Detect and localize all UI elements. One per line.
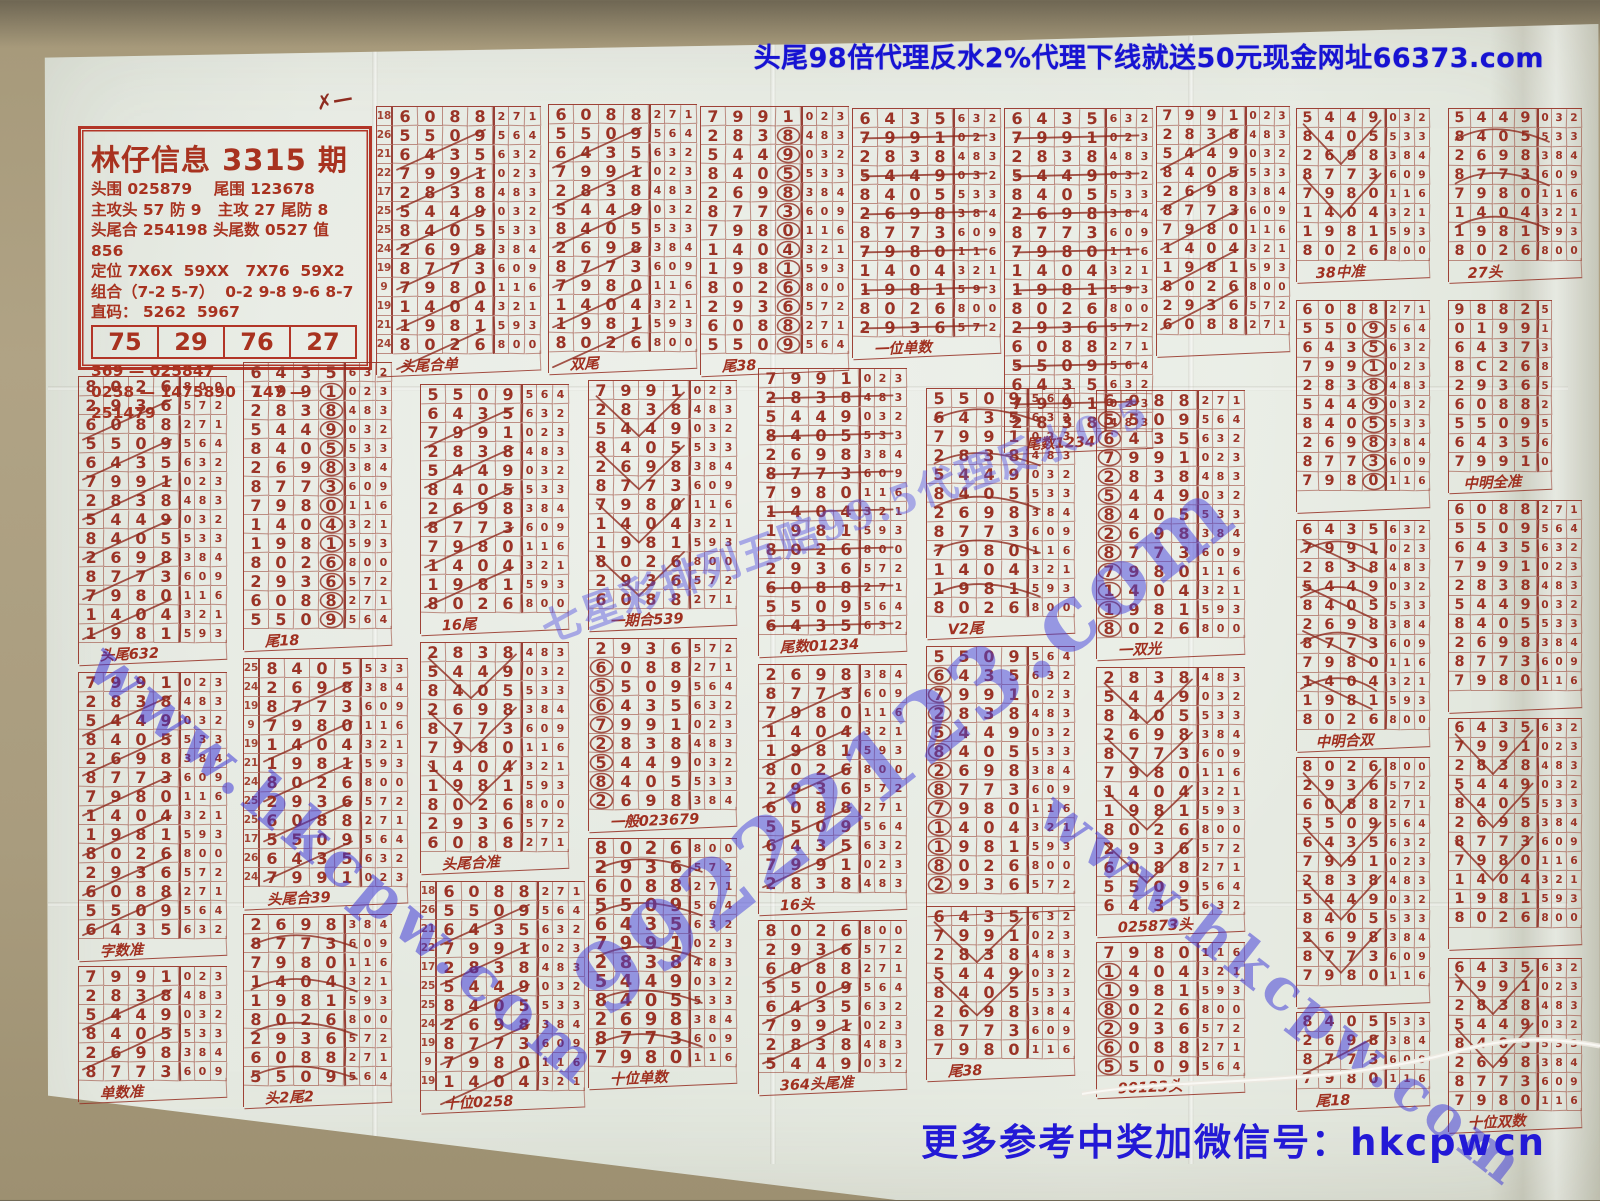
grid-cell: 0	[129, 529, 154, 548]
grid-cell: 5	[701, 335, 726, 355]
grid-cell: 0	[294, 972, 319, 992]
grid-cell: 4	[1197, 668, 1213, 687]
grid-cell: 0	[521, 662, 537, 681]
grid-cell: 9	[664, 677, 689, 697]
grid-cell: 2	[1137, 109, 1153, 128]
grid-cell: 3	[360, 363, 376, 382]
grid-cell: 3	[1059, 427, 1075, 446]
grid-cell: 1	[664, 533, 689, 553]
grid-row: 2698384	[927, 503, 1075, 522]
grid-row: 8773609	[421, 518, 569, 537]
grid-row: 1404321	[1449, 204, 1582, 223]
grid-cell: 0	[1400, 453, 1415, 472]
grid-cell: 2	[891, 559, 907, 578]
grid-cell: 3	[521, 556, 537, 575]
grid-cell: 2	[1297, 616, 1319, 636]
grid-cell: 1	[1363, 223, 1385, 243]
grid-cell: 8	[664, 658, 689, 677]
grid-cell: 3	[1415, 1013, 1430, 1032]
grid-cell: 9	[1363, 815, 1385, 835]
grid-cell: 7	[614, 1029, 639, 1049]
grid-row: 2936572	[589, 571, 737, 590]
grid-row: 8773609	[244, 477, 392, 496]
grid-row: 5449032	[1005, 166, 1153, 185]
grid-cell: 1	[1097, 962, 1122, 981]
grid-cell: 6	[878, 204, 903, 224]
grid-row: 6088271	[244, 591, 392, 610]
grid-cell: 3	[1493, 539, 1515, 558]
grid-cell: 9	[335, 830, 360, 850]
grid-cell: 4	[834, 722, 859, 742]
grid-cell: 3	[392, 754, 408, 773]
grid-cell: 1	[1223, 107, 1245, 127]
grid-row: 8405533	[244, 439, 392, 458]
grid-cell: 7	[1005, 128, 1030, 147]
grid-cell: 5	[154, 730, 179, 750]
grid-row: 2698384	[421, 499, 569, 518]
grid-cell: 0	[891, 760, 907, 779]
grid-row: 5449032	[421, 461, 569, 480]
grid-row: 2838483	[79, 986, 227, 1005]
grid-cell: 3	[1197, 782, 1213, 801]
grid-cell: 2	[360, 382, 376, 401]
grid-cell: 4	[1341, 578, 1363, 598]
grid-cell: 0	[129, 605, 154, 625]
grid-cell: 5	[689, 438, 705, 457]
grid-cell: 4	[1471, 204, 1493, 224]
grid-cell: 2	[179, 882, 195, 901]
grid-cell: 8	[1121, 147, 1137, 166]
grid-cell: 6	[1537, 1073, 1552, 1092]
grid-cell: 0	[977, 983, 1002, 1003]
grid-cell: 0	[521, 423, 537, 442]
grid-cell: 2	[721, 858, 737, 877]
grid-cell: 6	[1471, 814, 1493, 834]
grid-cell: 9	[776, 335, 801, 355]
grid-cell: 0	[1319, 711, 1341, 731]
grid-cell: 0	[614, 877, 639, 897]
grid-cell: 8	[1400, 434, 1415, 453]
grid-cell: 3	[211, 986, 227, 1005]
grid-cell: 8	[969, 204, 985, 223]
grid-cell: 2	[1567, 959, 1582, 978]
grid-cell: 1	[421, 556, 446, 576]
grid-cell: 0	[903, 185, 928, 205]
grid-cell: 3	[977, 446, 1002, 466]
grid-cell: 3	[801, 183, 817, 202]
grid-cell: 9	[269, 496, 294, 516]
grid-cell: 3	[1027, 818, 1043, 837]
grid-cell: 3	[1147, 668, 1172, 688]
grid-cell: 9	[496, 662, 521, 681]
grid-cell: 8	[751, 316, 776, 335]
grid-cell: 7	[285, 697, 310, 717]
grid-cell: 4	[1471, 871, 1493, 891]
grid-cell: 5	[589, 419, 614, 439]
header-card: 林仔信息 3315 期 头围 025879 尾围 123678 主攻头 57 防…	[78, 126, 372, 370]
grid-cell: 5	[1027, 484, 1043, 503]
grid-cell: 7	[809, 464, 834, 483]
grid-row: 6435632	[549, 143, 697, 162]
grid-cell: 3	[360, 735, 376, 754]
grid-cell: 6	[344, 363, 360, 382]
grid-cell: 8	[1223, 183, 1245, 202]
grid-handwritten-label: 头尾合准	[421, 849, 570, 875]
grid-cell: 8	[195, 548, 211, 567]
grid-cell: 9	[784, 779, 809, 798]
grid-cell: 3	[1415, 377, 1430, 396]
grid-cell: 0	[1341, 1013, 1363, 1033]
grid-cell: 2	[537, 556, 553, 575]
grid-cell: 8	[154, 986, 179, 1005]
grid-cell: 6	[1471, 634, 1493, 654]
grid-index-cell: 21	[421, 920, 437, 939]
grid-cell: 5	[421, 461, 446, 480]
grid-cell: 4	[776, 240, 801, 259]
grid-cell: 9	[721, 1029, 737, 1048]
grid-cell: 8	[179, 844, 195, 863]
grid-cell: 9	[664, 972, 689, 991]
grid-cell: 3	[195, 453, 211, 472]
grid-cell: 9	[1260, 259, 1275, 278]
grid-row: 198773609	[421, 1034, 585, 1053]
grid-cell: 8	[649, 333, 665, 352]
grid-cell: 3	[1172, 543, 1197, 563]
grid-cell: 2	[1229, 1019, 1245, 1038]
grid-cell: 0	[1122, 858, 1147, 878]
grid-cell: 0	[195, 844, 211, 863]
grid-cell: 9	[1493, 1054, 1515, 1073]
grid-row: 2698384	[1005, 204, 1153, 223]
grid-cell: 2	[1567, 776, 1582, 795]
grid-cell: 0	[1552, 166, 1567, 185]
grid-cell: 3	[1229, 801, 1245, 820]
grid-cell: 3	[1059, 484, 1075, 503]
grid-cell: 8	[1245, 278, 1260, 297]
grid-cell: 9	[1030, 280, 1055, 299]
grid-row: 1981593	[244, 991, 392, 1010]
grid-row: 7991023	[589, 934, 737, 953]
grid-row: 8405533	[79, 1024, 227, 1043]
grid-cell: 2	[1097, 1019, 1122, 1038]
grid-cell: 1	[853, 280, 878, 300]
grid-cell: 0	[1122, 619, 1147, 638]
grid-cell: 6	[569, 1053, 585, 1072]
grid-cell: 5	[1105, 318, 1121, 337]
grid-cell: 0	[1471, 396, 1493, 416]
grid-row: 6088271	[759, 959, 907, 978]
grid-handwritten-label: 尾38	[927, 1056, 1076, 1082]
grid-cell: 5	[574, 124, 599, 144]
quick-number: 76	[225, 327, 291, 357]
grid-cell: 5	[1319, 320, 1341, 340]
grid-cell: 3	[195, 711, 211, 730]
grid-cell: 9	[1122, 763, 1147, 783]
grid-cell: 2	[1229, 839, 1245, 858]
grid-cell: 7	[446, 719, 471, 739]
grid-cell: 0	[553, 795, 569, 814]
grid-cell: 8	[784, 874, 809, 894]
grid-cell: 6	[1197, 744, 1213, 763]
grid-cell: 4	[1567, 520, 1582, 539]
grid-cell: 6	[614, 1010, 639, 1029]
grid-cell: 3	[471, 643, 496, 663]
grid-cell: 2	[985, 166, 1001, 185]
grid-cell: 6	[1121, 356, 1137, 375]
grid-cell: 3	[721, 400, 737, 419]
grid-cell: 4	[1415, 147, 1430, 166]
grid-cell: 6	[496, 594, 521, 614]
grid-row: 5449032	[79, 1005, 227, 1024]
grid-cell: 8	[1172, 725, 1197, 745]
grid-cell: 8	[927, 522, 952, 541]
grid-cell: 5	[1002, 907, 1027, 927]
grid-cell: 0	[784, 959, 809, 979]
grid-row: 8773609	[244, 934, 392, 953]
grid-cell: 4	[721, 896, 737, 915]
grid-cell: 4	[1319, 521, 1341, 540]
grid-row: 2838483	[759, 1035, 907, 1054]
grid-cell: 8	[1223, 316, 1245, 336]
grid-cell: 6	[549, 105, 574, 125]
grid-cell: 1	[721, 658, 737, 677]
grid-cell: 7	[1260, 297, 1275, 316]
grid-cell: 8	[1201, 316, 1223, 335]
grid-cell: 3	[1385, 1032, 1400, 1051]
grid-cell: 7	[1449, 1092, 1471, 1111]
grid-cell: 9	[1213, 801, 1229, 820]
grid-cell: 2	[211, 510, 227, 529]
grid-cell: 0	[1147, 410, 1172, 430]
grid-cell: 6	[574, 238, 599, 258]
grid-cell: 8	[1363, 559, 1385, 579]
grid-cell: 2	[1157, 126, 1179, 145]
grid-cell: 3	[493, 297, 509, 316]
grid-row: 2698384	[759, 445, 907, 464]
grid-cell: 1	[875, 703, 891, 722]
grid-cell: 2	[701, 183, 726, 202]
grid-cell: 0	[1493, 1035, 1515, 1055]
grid-cell: 3	[496, 518, 521, 537]
grid-cell: 8	[294, 1048, 319, 1068]
grid-cell: 8	[468, 240, 493, 259]
grid-cell: 8	[1515, 997, 1537, 1017]
grid-cell: 3	[1341, 834, 1363, 854]
grid-cell: 9	[1030, 128, 1055, 148]
grid-cell: 4	[1179, 240, 1201, 260]
grid-cell: 7	[701, 221, 726, 241]
grid-cell: 1	[759, 502, 784, 521]
grid-cell: 5	[1449, 596, 1471, 616]
grid-cell: 1	[1097, 782, 1122, 802]
grid-cell: 2	[1097, 839, 1122, 859]
grid-cell: 6	[1319, 1032, 1341, 1052]
grid-cell: 8	[834, 1035, 859, 1055]
grid-cell: 3	[294, 401, 319, 420]
grid-cell: 8	[665, 181, 681, 200]
grid-cell: 0	[1197, 687, 1213, 706]
grid-row: 8773609	[853, 223, 1001, 242]
grid-cell: 9	[614, 495, 639, 514]
grid-cell: 5	[614, 896, 639, 915]
grid-cell: 3	[1043, 408, 1059, 427]
grid-cell: 9	[875, 521, 891, 540]
grid-cell: 8	[589, 476, 614, 496]
grid-cell: 1	[211, 806, 227, 825]
grid-cell: 3	[1567, 978, 1582, 997]
grid-cell: 7	[759, 1016, 784, 1036]
grid-cell: 4	[977, 465, 1002, 485]
grid-cell: 7	[1005, 242, 1030, 261]
grid-cell: 4	[809, 407, 834, 426]
grid-cell: 3	[1567, 997, 1582, 1016]
grid-cell: 0	[726, 316, 751, 336]
grid-cell: 0	[1341, 815, 1363, 835]
grid-cell: 3	[376, 991, 392, 1010]
grid-row: 8026800	[853, 299, 1001, 318]
grid-cell: 4	[878, 166, 903, 185]
grid-cell: 7	[977, 780, 1002, 800]
grid-cell: 6	[1385, 453, 1400, 472]
grid-cell: 3	[553, 776, 569, 795]
grid-cell: 7	[1400, 301, 1415, 320]
grid-cell: 3	[639, 953, 664, 973]
grid-row: 8026800	[1005, 299, 1153, 318]
grid-index-cell: 24	[377, 240, 393, 259]
grid-cell: 8	[471, 833, 496, 853]
grid-cell: 5	[927, 465, 952, 484]
grid-cell: 2	[809, 921, 834, 941]
grid-cell: 8	[269, 401, 294, 421]
grid-cell: 9	[310, 678, 335, 698]
grid-cell: 0	[784, 760, 809, 780]
grid-cell: 8	[664, 1010, 689, 1030]
grid-cell: 3	[129, 396, 154, 416]
grid-cell: 6	[1297, 521, 1319, 541]
grid-cell: 3	[1552, 539, 1567, 558]
grid-cell: 4	[179, 692, 195, 711]
grid-cell: 5	[269, 610, 294, 630]
grid-row: 8773609	[1297, 635, 1430, 654]
grid-cell: 5	[953, 185, 969, 204]
grid-cell: 5	[1197, 839, 1213, 858]
number-grid: 8026800293657260882715509564643563279910…	[758, 920, 907, 1094]
grid-cell: 0	[294, 610, 319, 630]
grid-cell: 7	[360, 572, 376, 591]
grid-cell: 7	[79, 472, 104, 492]
grid-cell: 3	[344, 972, 360, 991]
grid-cell: 7	[104, 1062, 129, 1082]
grid-cell: 6	[664, 858, 689, 877]
grid-cell: 8	[1552, 997, 1567, 1016]
grid-cell: 7	[1030, 223, 1055, 242]
grid-row: 2936572	[589, 858, 737, 877]
grid-cell: 0	[1147, 877, 1172, 896]
grid-cell: 9	[1363, 891, 1385, 910]
grid-cell: 3	[639, 696, 664, 716]
grid-cell: 4	[154, 605, 179, 625]
grid-cell: 4	[721, 457, 737, 476]
grid-cell: 8	[1400, 929, 1415, 948]
grid-cell: 8	[418, 183, 443, 203]
grid-cell: 1	[1121, 242, 1137, 261]
grid-cell: 8	[471, 537, 496, 556]
grid-cell: 5	[285, 830, 310, 849]
grid-cell: 8	[154, 1043, 179, 1062]
grid-row: 5449032	[589, 419, 737, 438]
grid-cell: 3	[977, 907, 1002, 927]
grid-cell: 9	[776, 145, 801, 165]
grid-cell: 9	[446, 537, 471, 557]
grid-cell: 9	[1493, 738, 1515, 758]
grid-cell: 1	[1197, 943, 1213, 962]
grid-cell: 0	[487, 996, 512, 1016]
header-line: 直码： 5262 5967	[91, 302, 361, 323]
grid-cell: 8	[335, 811, 360, 831]
grid-cell: 2	[891, 779, 907, 798]
grid-cell: 7	[1297, 472, 1319, 492]
grid-cell: 5	[1297, 320, 1319, 339]
grid-cell: 8	[154, 749, 179, 768]
grid-cell: 0	[471, 681, 496, 700]
grid-cell: 6	[689, 696, 705, 715]
grid-cell: 0	[294, 1067, 319, 1086]
grid-cell: 6	[521, 404, 537, 423]
grid-cell: 8	[1297, 415, 1319, 435]
grid-cell: 3	[1567, 128, 1582, 147]
grid-cell: 8	[1449, 166, 1471, 186]
grid-cell: 4	[784, 836, 809, 855]
grid-cell: 0	[1260, 202, 1275, 221]
grid-cell: 3	[751, 297, 776, 317]
grid-cell: 8	[468, 107, 493, 127]
grid-cell: 3	[487, 958, 512, 978]
grid-row: 6435632	[927, 408, 1075, 427]
grid-cell: 7	[79, 586, 104, 606]
grid-cell: 3	[1400, 339, 1415, 358]
grid-cell: 3	[875, 426, 891, 445]
grid-cell: 2	[721, 696, 737, 715]
grid-cell: 4	[129, 711, 154, 730]
grid-cell: 8	[624, 238, 649, 257]
grid-cell: 3	[1385, 616, 1400, 635]
grid-row: 2838483	[421, 643, 569, 662]
grid-cell: 8	[79, 1024, 104, 1044]
grid-cell: 2	[244, 915, 269, 935]
grid-row: 227991023	[421, 939, 585, 958]
grid-cell: 0	[574, 105, 599, 124]
grid-cell: 4	[462, 1072, 487, 1092]
grid-cell: 6	[1400, 320, 1415, 339]
grid-row: 7991023	[927, 926, 1075, 945]
grid-cell: 1	[834, 741, 859, 760]
grid-cell: 0	[179, 673, 195, 692]
grid-cell: 7	[1341, 1051, 1363, 1070]
grid-cell: 1	[1229, 858, 1245, 877]
grid-cell: 0	[468, 278, 493, 298]
grid-cell: 2	[1229, 687, 1245, 706]
grid-cell: 0	[721, 839, 737, 858]
grid-cell: 3	[681, 314, 697, 333]
grid-cell: 7	[360, 591, 376, 610]
grid-cell: 5	[1027, 837, 1043, 856]
grid-cell: 7	[487, 1034, 512, 1053]
grid-cell: 4	[784, 407, 809, 427]
grid-row: 2936572	[244, 572, 392, 591]
grid-cell: 7	[1122, 744, 1147, 764]
grid-cell: 3	[721, 381, 737, 400]
grid-cell: 7	[269, 934, 294, 954]
